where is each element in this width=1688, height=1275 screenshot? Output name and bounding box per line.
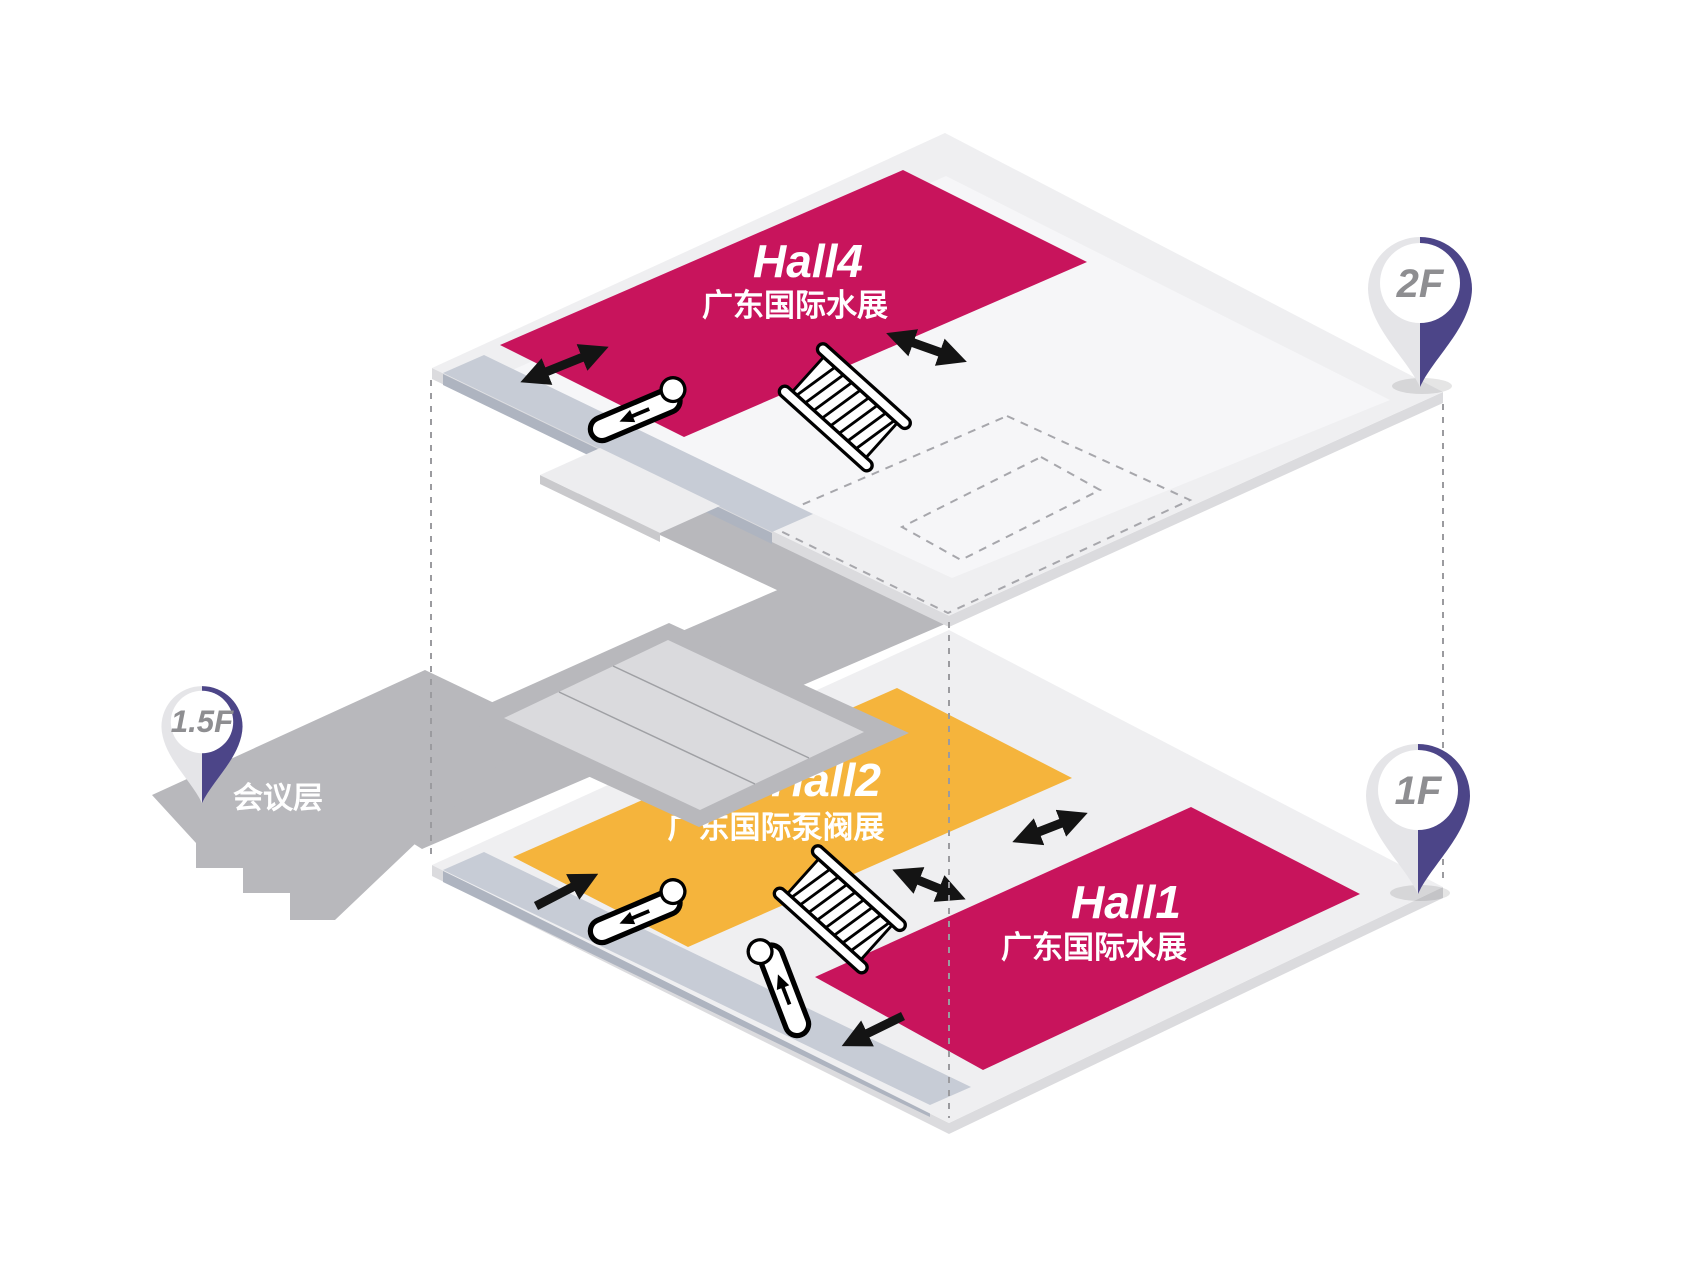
hall1-subtitle: 广东国际水展 bbox=[1001, 930, 1187, 965]
floor-map: Hall2 广东国际泵阀展 Hall1 广东国际水展 会议层 Hall4 bbox=[0, 0, 1688, 1275]
conference-level-label: 会议层 bbox=[233, 782, 323, 815]
pin-label-1f: 1F bbox=[1395, 769, 1443, 813]
hall4-subtitle: 广东国际水展 bbox=[702, 288, 888, 323]
hall4-label: Hall4 bbox=[753, 235, 863, 287]
pin-label-2f: 2F bbox=[1396, 262, 1445, 306]
hall1-label: Hall1 bbox=[1071, 876, 1181, 928]
pin-label-1-5f: 1.5F bbox=[171, 704, 234, 739]
floorplan-svg: Hall2 广东国际泵阀展 Hall1 广东国际水展 会议层 Hall4 bbox=[0, 0, 1688, 1275]
floor-2f: Hall4 广东国际水展 bbox=[432, 133, 1443, 627]
